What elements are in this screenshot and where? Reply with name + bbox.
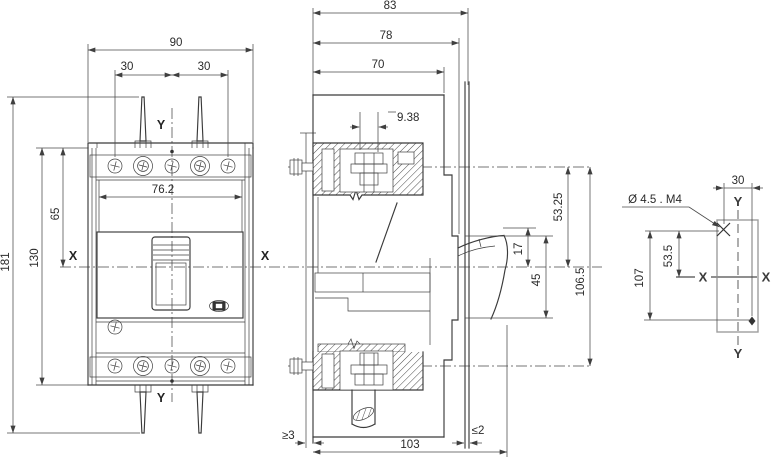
brand-logo	[210, 301, 229, 312]
dim-depth-83: 83	[384, 0, 397, 12]
top-terminal-section	[290, 143, 423, 200]
dim-depth-overall: 103	[400, 439, 419, 451]
dim-depth-70: 70	[372, 59, 385, 71]
dim-depth-78: 78	[380, 30, 393, 42]
top-terminal-blades	[135, 97, 208, 148]
dim-hole-pitch: 107	[634, 268, 646, 287]
dim-body-height: 130	[29, 248, 41, 267]
dim-axis-to-x: 53.25	[553, 193, 565, 222]
dim-overall-width: 90	[170, 37, 183, 49]
dim-window-height: 45	[531, 274, 543, 287]
axis-label-y-top: Y	[157, 118, 166, 132]
hole-callout-text: Ø 4.5 . M4	[628, 194, 682, 206]
front-face-steps	[444, 95, 458, 437]
axis-label-x-right: X	[261, 249, 270, 263]
dim-hole-offset-x: 30	[732, 175, 745, 187]
dim-terminal-pitch: 106.5	[575, 268, 587, 297]
side-depth-dimensions: 83 78 70	[313, 0, 468, 234]
breaker-dimension-drawing: 90 30 30 76.2 65 130 181 Y Y X X	[0, 0, 775, 461]
axis-label-y-bottom: Y	[157, 391, 166, 405]
bottom-terminal-blades	[135, 385, 208, 433]
front-dimensions: 90 30 30 76.2 65 130 181	[0, 37, 253, 433]
mount-axis-y-bottom: Y	[734, 346, 743, 361]
hole-callout: Ø 4.5 . M4	[622, 194, 720, 227]
drilling-pattern-view: Y Y X X Ø 4.5 . M4 30 53.5	[622, 175, 771, 361]
dim-hole-to-x: 53.5	[663, 245, 675, 267]
dim-top-to-x: 65	[50, 208, 62, 221]
internal-diagonal	[376, 203, 397, 262]
mount-axis-x-right: X	[762, 270, 771, 285]
dim-window-top-to-x: 17	[513, 243, 525, 256]
toggle-handle[interactable]	[152, 237, 190, 310]
mounting-hole-bottom	[749, 317, 756, 326]
bottom-terminal-section	[290, 339, 423, 390]
dim-pole-pitch-right: 30	[198, 61, 211, 73]
axis-label-x-left: X	[69, 249, 78, 263]
front-view: 90 30 30 76.2 65 130 181 Y Y X X	[0, 37, 270, 433]
side-section-view: 83 78 70 9.38 53.25 106.5 17	[282, 0, 592, 457]
dim-clearance-min: ≥3	[282, 430, 295, 442]
side-height-dimensions: 53.25 106.5 17 45	[465, 167, 590, 366]
mount-axis-x-left: X	[699, 270, 708, 285]
dim-pole-pitch-left: 30	[121, 61, 134, 73]
dim-overall-height: 181	[0, 252, 12, 271]
dim-panel-max: ≤2	[472, 425, 485, 437]
technical-drawing-page: 90 30 30 76.2 65 130 181 Y Y X X	[0, 0, 775, 461]
bottom-terminal-strip	[90, 357, 251, 377]
dim-offset-938: 9.38	[397, 112, 419, 124]
mounting-hole-top	[717, 223, 730, 236]
dim-window-width: 76.2	[152, 184, 174, 196]
mount-axis-y-top: Y	[734, 194, 743, 209]
cable-conductor	[351, 390, 375, 428]
